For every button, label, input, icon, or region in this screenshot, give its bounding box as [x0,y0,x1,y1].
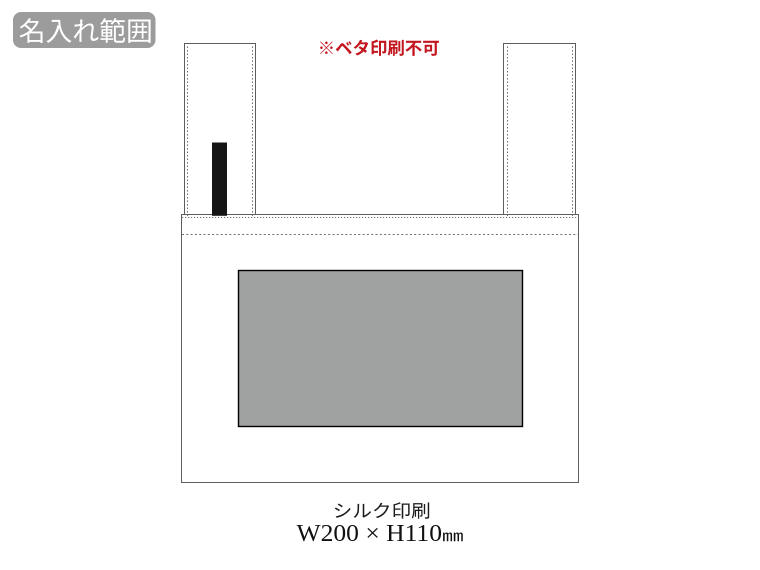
svg-text:W200 × H110: W200 × H110 [297,520,443,547]
